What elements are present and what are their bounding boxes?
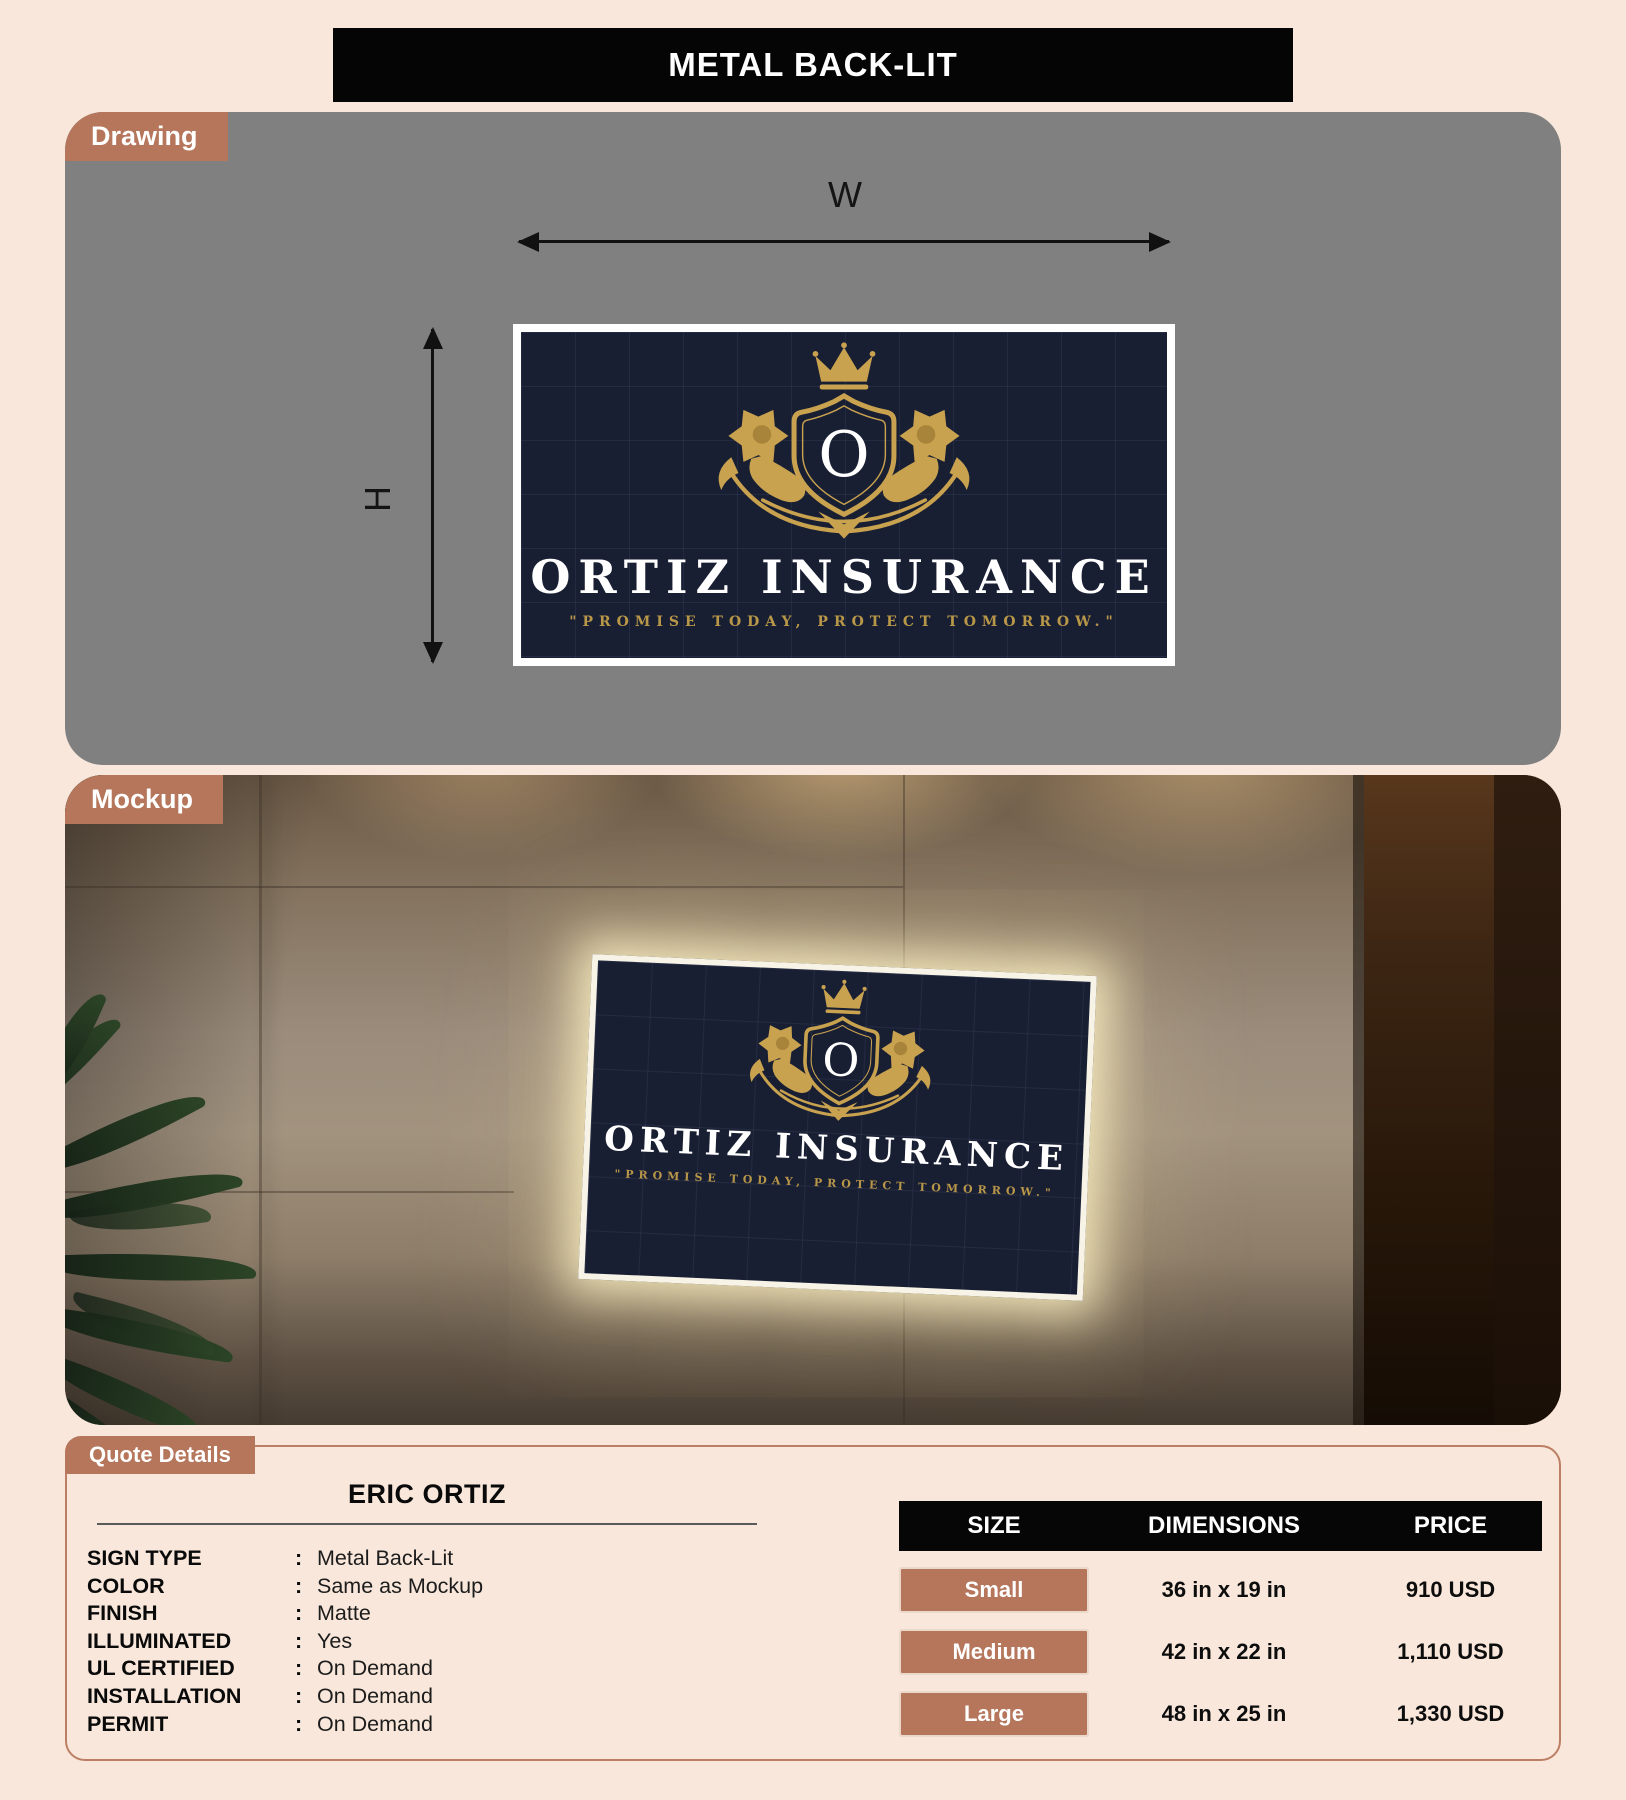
column-header-price: PRICE	[1359, 1512, 1542, 1540]
wood-panel	[1364, 775, 1494, 1425]
quote-spec-column: ERIC ORTIZ SIGN TYPE : Metal Back-Lit CO…	[67, 1447, 787, 1738]
price-value: 910 USD	[1359, 1577, 1542, 1603]
customer-name: ERIC ORTIZ	[127, 1479, 727, 1510]
quote-panel: ERIC ORTIZ SIGN TYPE : Metal Back-Lit CO…	[65, 1445, 1561, 1761]
size-option-large[interactable]: Large	[899, 1691, 1089, 1737]
column-header-size: SIZE	[899, 1512, 1089, 1540]
table-row: Medium 42 in x 22 in 1,110 USD	[899, 1629, 1542, 1675]
crest-logo: O	[730, 970, 953, 1133]
wall-seam-horizontal	[65, 886, 903, 888]
spec-row: ILLUMINATED : Yes	[87, 1628, 787, 1656]
spec-list: SIGN TYPE : Metal Back-Lit COLOR : Same …	[87, 1545, 787, 1738]
dimensions-value: 42 in x 22 in	[1089, 1639, 1359, 1665]
table-row: Small 36 in x 19 in 910 USD	[899, 1567, 1542, 1613]
dimensions-value: 36 in x 19 in	[1089, 1577, 1359, 1603]
divider	[97, 1523, 757, 1525]
table-row: Large 48 in x 25 in 1,330 USD	[899, 1691, 1542, 1737]
page-title: METAL BACK-LIT	[668, 46, 958, 84]
crown-icon	[813, 342, 876, 389]
spec-row: PERMIT : On Demand	[87, 1711, 787, 1739]
spec-row: COLOR : Same as Mockup	[87, 1573, 787, 1601]
crown-icon	[820, 979, 867, 1015]
quote-details-section: Quote Details ERIC ORTIZ SIGN TYPE : Met…	[65, 1436, 1561, 1761]
spec-row: INSTALLATION : On Demand	[87, 1683, 787, 1711]
sign-artwork-mockup: O ORTIZ INSURANCE "PROMISE TODAY, PROTEC…	[578, 954, 1097, 1301]
price-value: 1,110 USD	[1359, 1639, 1542, 1665]
drawing-section-label: Drawing	[65, 112, 228, 161]
pricing-table: SIZE DIMENSIONS PRICE Small 36 in x 19 i…	[899, 1501, 1542, 1737]
size-option-medium[interactable]: Medium	[899, 1629, 1089, 1675]
dimensions-value: 48 in x 25 in	[1089, 1701, 1359, 1727]
page-header-banner: METAL BACK-LIT	[333, 28, 1293, 102]
quote-details-label: Quote Details	[65, 1436, 255, 1474]
height-dimension-label: H	[357, 486, 399, 512]
price-value: 1,330 USD	[1359, 1701, 1542, 1727]
sign-company-name: ORTIZ INSURANCE	[530, 550, 1157, 604]
spec-row: UL CERTIFIED : On Demand	[87, 1655, 787, 1683]
sign-monogram: O	[818, 418, 869, 491]
sign-artwork-drawing: O ORTIZ INSURANCE "PROMISE TODAY, PROTEC…	[513, 324, 1175, 666]
height-arrow-icon	[431, 329, 434, 662]
spec-row: SIGN TYPE : Metal Back-Lit	[87, 1545, 787, 1573]
column-header-dimensions: DIMENSIONS	[1089, 1512, 1359, 1540]
drawing-section: Drawing W H	[65, 112, 1561, 765]
sign-monogram: O	[821, 1033, 860, 1088]
width-dimension-label: W	[828, 174, 862, 216]
wood-panel-edge	[1494, 775, 1561, 1425]
width-arrow-icon	[519, 240, 1169, 243]
spec-row: FINISH : Matte	[87, 1600, 787, 1628]
wood-panel-gap	[1353, 775, 1363, 1425]
mockup-section: Mockup	[65, 775, 1561, 1425]
pricing-table-header: SIZE DIMENSIONS PRICE	[899, 1501, 1542, 1551]
mockup-section-label: Mockup	[65, 775, 223, 824]
plant-icon	[65, 1081, 361, 1425]
size-option-small[interactable]: Small	[899, 1567, 1089, 1613]
sign-tagline: "PROMISE TODAY, PROTECT TOMORROW."	[569, 614, 1119, 630]
crest-logo: O	[694, 336, 994, 550]
